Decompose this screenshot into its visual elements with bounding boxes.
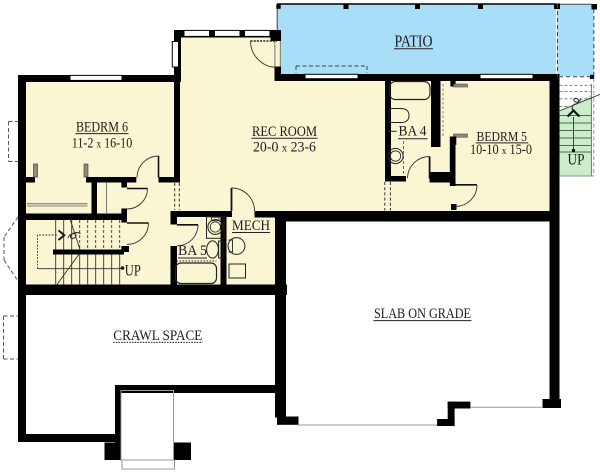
svg-text:BA 4: BA 4 <box>399 124 427 140</box>
svg-text:SLAB ON GRADE: SLAB ON GRADE <box>374 306 471 322</box>
svg-text:BA 5: BA 5 <box>178 243 207 259</box>
svg-text:UP: UP <box>125 263 141 280</box>
svg-text:PATIO: PATIO <box>395 32 433 51</box>
svg-text:CRAWL SPACE: CRAWL SPACE <box>113 328 202 344</box>
svg-text:10-10 x 15-0: 10-10 x 15-0 <box>470 142 532 158</box>
svg-text:REC ROOM: REC ROOM <box>252 124 317 140</box>
svg-text:20-0 x 23-6: 20-0 x 23-6 <box>253 140 316 156</box>
svg-text:UP: UP <box>568 152 585 169</box>
svg-text:11-2 x 16-10: 11-2 x 16-10 <box>72 136 133 152</box>
svg-text:MECH: MECH <box>232 218 270 234</box>
